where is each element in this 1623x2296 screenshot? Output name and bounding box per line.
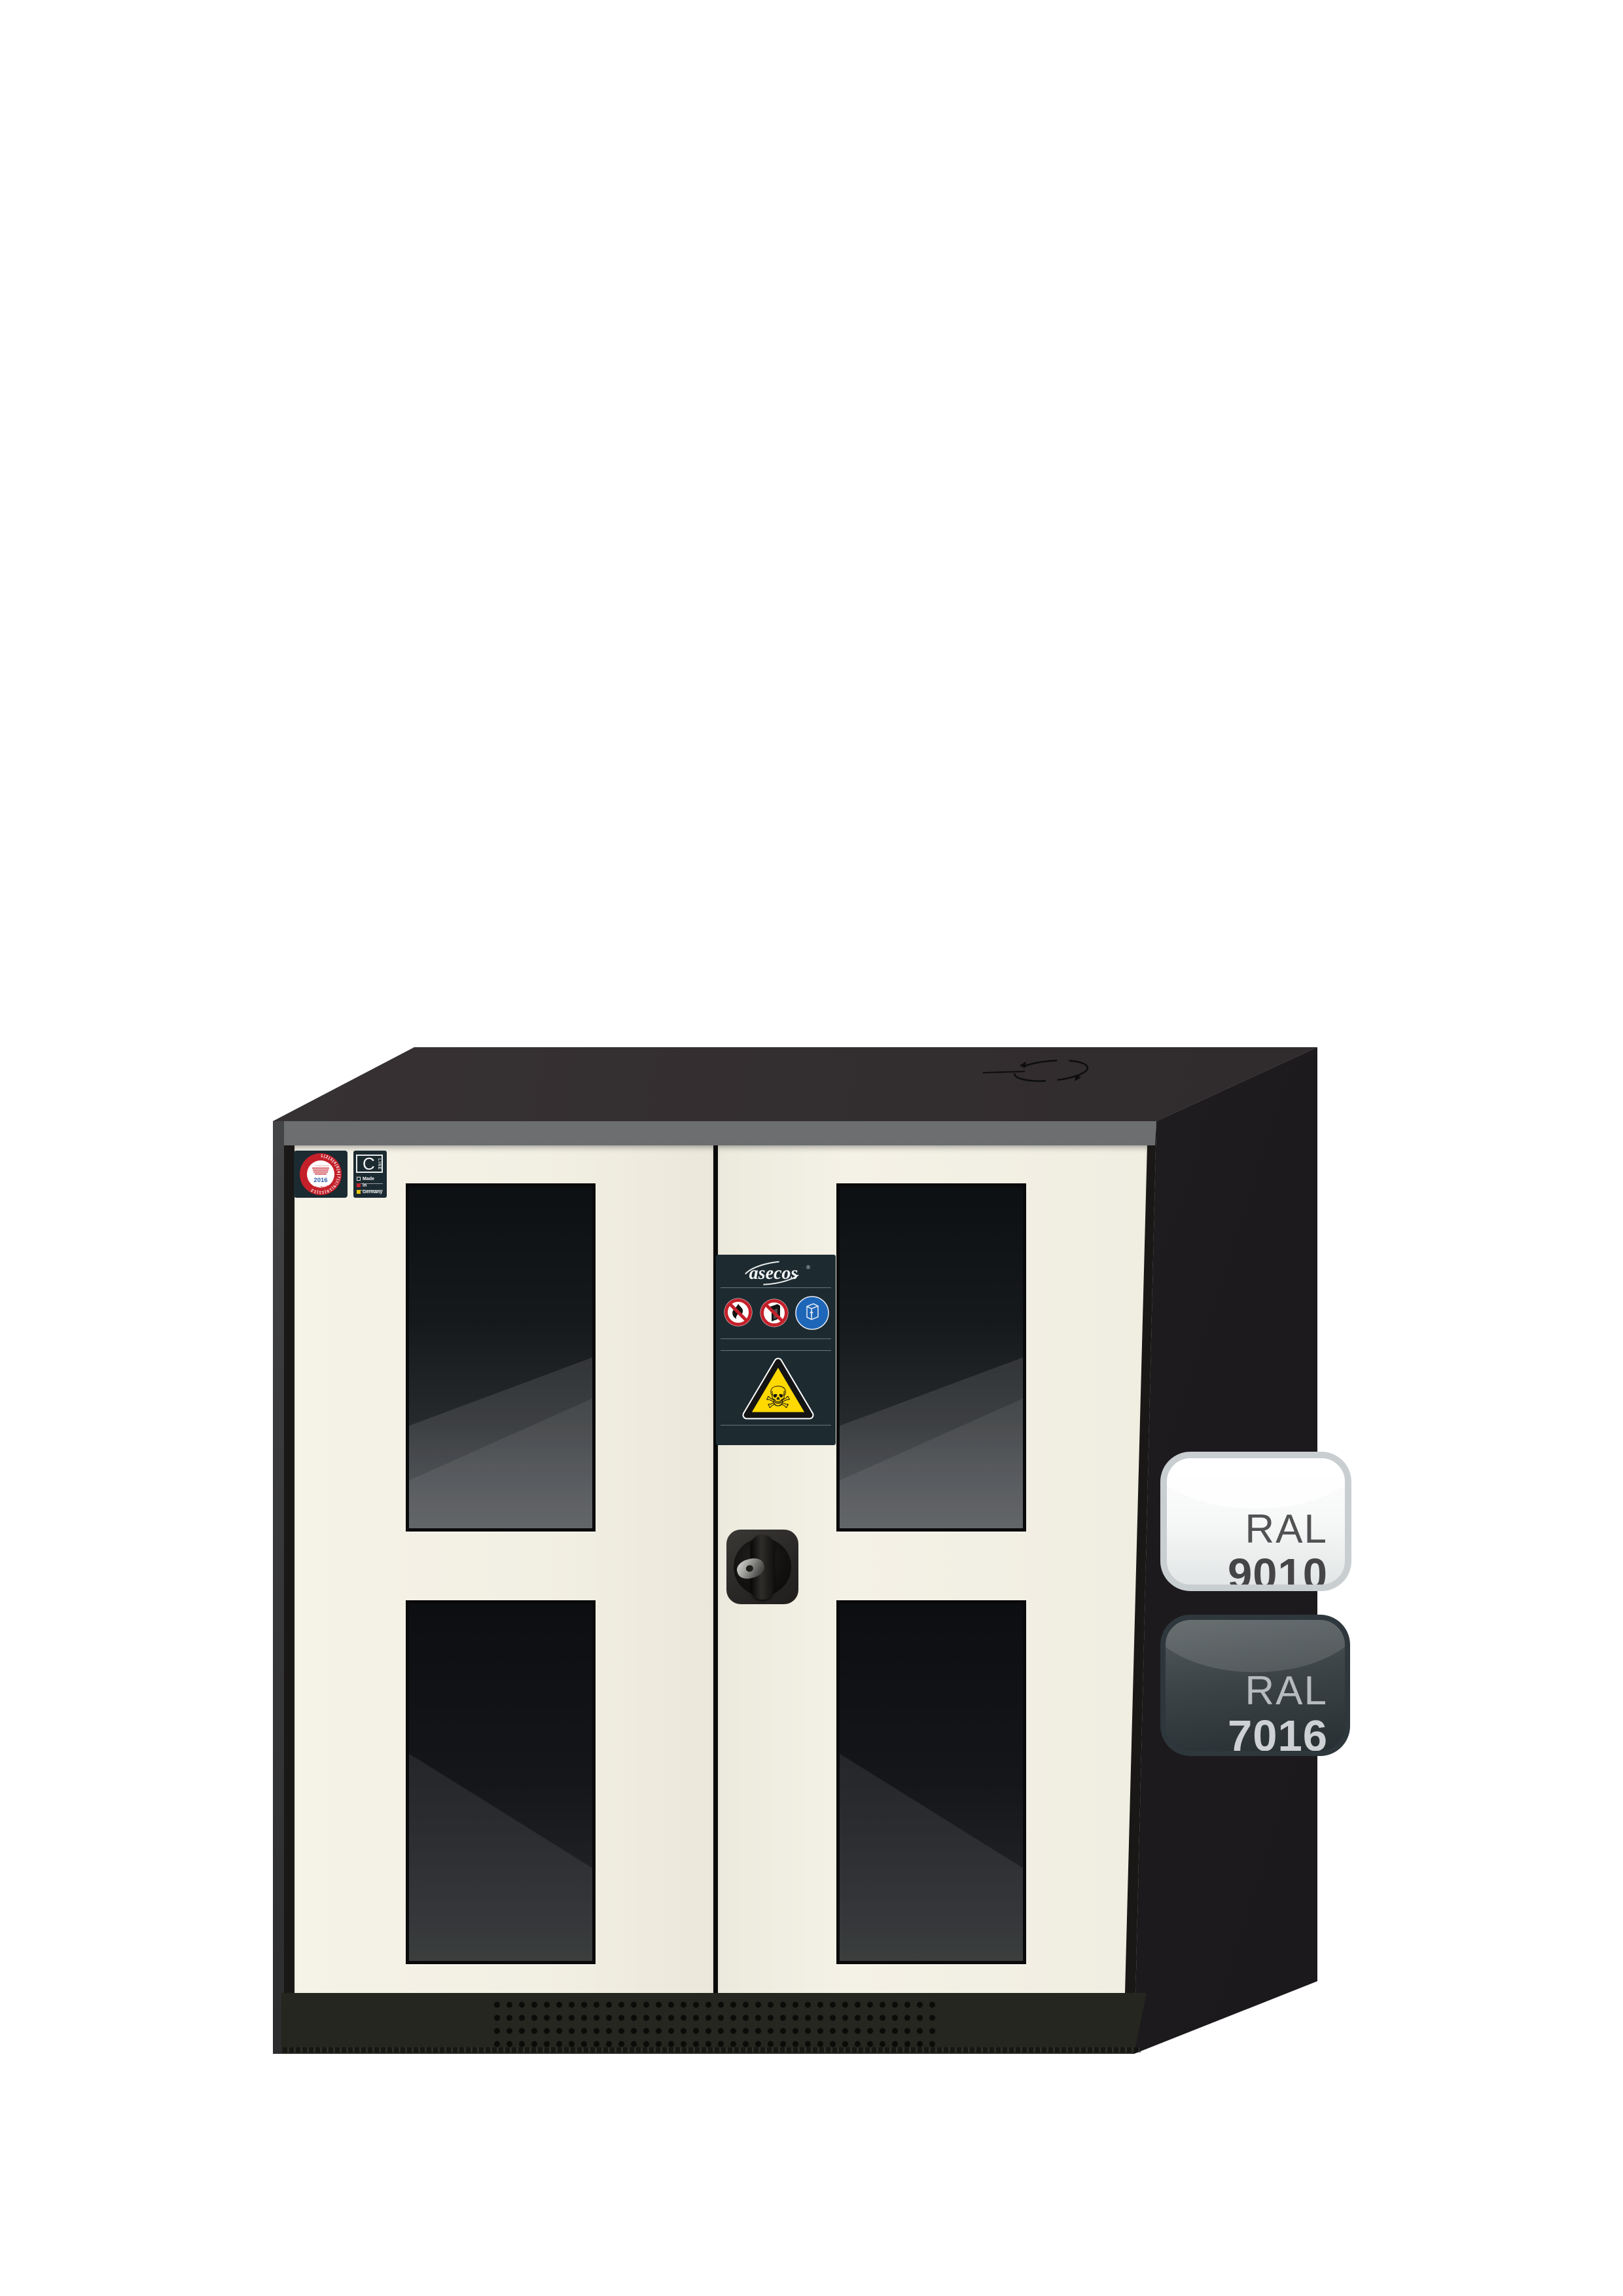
plate-divider (721, 1338, 831, 1339)
product-scene: 1|2|3|4|5|6|7|8|9|10|11|12 2016 Nächster… (0, 0, 1623, 2296)
ral-label: RAL (1228, 1509, 1328, 1550)
flag-square-icon (357, 1183, 361, 1187)
flag-square-icon (357, 1190, 361, 1194)
plate-divider (721, 1350, 831, 1351)
plinth-bottom-edge (283, 2047, 1141, 2053)
window-glass (840, 1604, 1023, 1961)
window-glass (409, 1187, 592, 1528)
color-badge-ral-9010: RAL 9010 (1160, 1452, 1351, 1591)
seal-year: 2016 (313, 1177, 327, 1184)
left-door-bottom-window (406, 1600, 596, 1964)
flag-square-icon (357, 1177, 361, 1181)
color-badge-ral-7016: RAL 7016 (1160, 1615, 1350, 1756)
rotate-arrows-icon (982, 1055, 1099, 1086)
right-door-top-window (836, 1183, 1026, 1532)
keep-container-closed-icon (795, 1296, 829, 1330)
ral-code: 7016 (1228, 1714, 1328, 1756)
badge-text: RAL 9010 (1228, 1509, 1328, 1591)
asecos-logo: asecos ® (726, 1259, 825, 1287)
ral-label: RAL (1228, 1671, 1328, 1712)
ral-code: 9010 (1228, 1552, 1328, 1591)
plate-divider (721, 1287, 831, 1288)
window-glass (409, 1604, 592, 1961)
right-door-bottom-window (836, 1600, 1026, 1964)
plate-divider (721, 1425, 831, 1426)
brand-text: asecos (749, 1263, 798, 1283)
badge-text: RAL 7016 (1228, 1671, 1328, 1756)
skull-glyph: ☠ (764, 1380, 791, 1415)
series-letter: C (363, 1154, 375, 1174)
series-plate-label: C LINE Made in Germany (353, 1151, 387, 1198)
left-door-top-window (406, 1183, 596, 1532)
ventilation-perforation (491, 1998, 938, 2051)
series-line-text: LINE (377, 1158, 381, 1170)
no-open-flame-icon (724, 1298, 753, 1327)
toxic-skull-icon: ☠ (741, 1357, 815, 1420)
window-glass (840, 1187, 1023, 1528)
cylinder-lock-knob (726, 1530, 798, 1604)
made-in-row: Germany (357, 1190, 382, 1196)
made-in-text: Made (363, 1177, 374, 1181)
registered-mark: ® (806, 1265, 810, 1270)
inspection-seal-icon: 1|2|3|4|5|6|7|8|9|10|11|12 2016 Nächster… (294, 1151, 348, 1198)
c-line-box: C LINE (356, 1155, 383, 1173)
made-in-text: in (363, 1183, 366, 1188)
inspection-seal-label: 1|2|3|4|5|6|7|8|9|10|11|12 2016 Nächster… (294, 1151, 348, 1198)
center-warning-plate: asecos ® (716, 1255, 836, 1445)
made-in-text: Germany (363, 1190, 382, 1194)
no-fire-door-icon (760, 1299, 789, 1327)
